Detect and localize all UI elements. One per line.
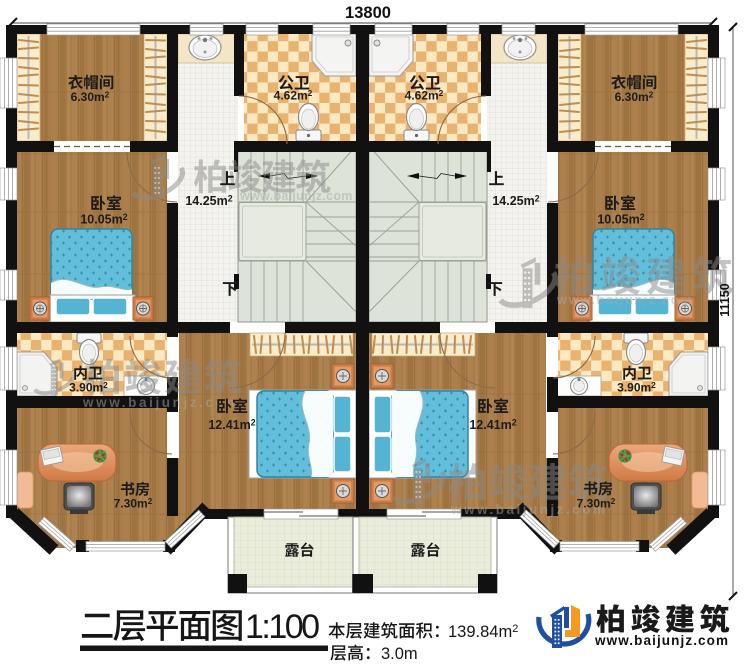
svg-text:6.30m2: 6.30m2 (71, 90, 110, 105)
svg-text:www.baijunjz.com: www.baijunjz.com (556, 292, 693, 307)
svg-text:10.05m2: 10.05m2 (597, 212, 644, 227)
svg-text:139.84m2: 139.84m2 (448, 623, 518, 641)
svg-text:14.25m2: 14.25m2 (185, 194, 232, 209)
svg-text:www.baijunjz.com: www.baijunjz.com (239, 189, 353, 203)
svg-text:3.90m2: 3.90m2 (617, 380, 656, 395)
svg-text:www.baijunjz.com: www.baijunjz.com (82, 395, 241, 410)
svg-text:13800: 13800 (345, 4, 391, 22)
svg-text:6.30m2: 6.30m2 (615, 90, 654, 105)
svg-text:3.0m: 3.0m (381, 645, 418, 663)
svg-text:1:100: 1:100 (245, 608, 319, 646)
svg-text:www.baijunjz.com: www.baijunjz.com (594, 633, 729, 648)
svg-text:11150: 11150 (718, 283, 732, 316)
svg-text:3.90m2: 3.90m2 (69, 380, 108, 395)
svg-text:4.62m2: 4.62m2 (405, 88, 444, 103)
svg-text:7.30m2: 7.30m2 (577, 496, 616, 511)
svg-text:4.62m2: 4.62m2 (274, 88, 313, 103)
svg-text:14.25m2: 14.25m2 (492, 194, 539, 209)
svg-text:12.41m2: 12.41m2 (469, 418, 516, 433)
svg-text:10.05m2: 10.05m2 (80, 212, 127, 227)
svg-text:7.30m2: 7.30m2 (114, 496, 153, 511)
svg-text:12.41m2: 12.41m2 (208, 418, 255, 433)
